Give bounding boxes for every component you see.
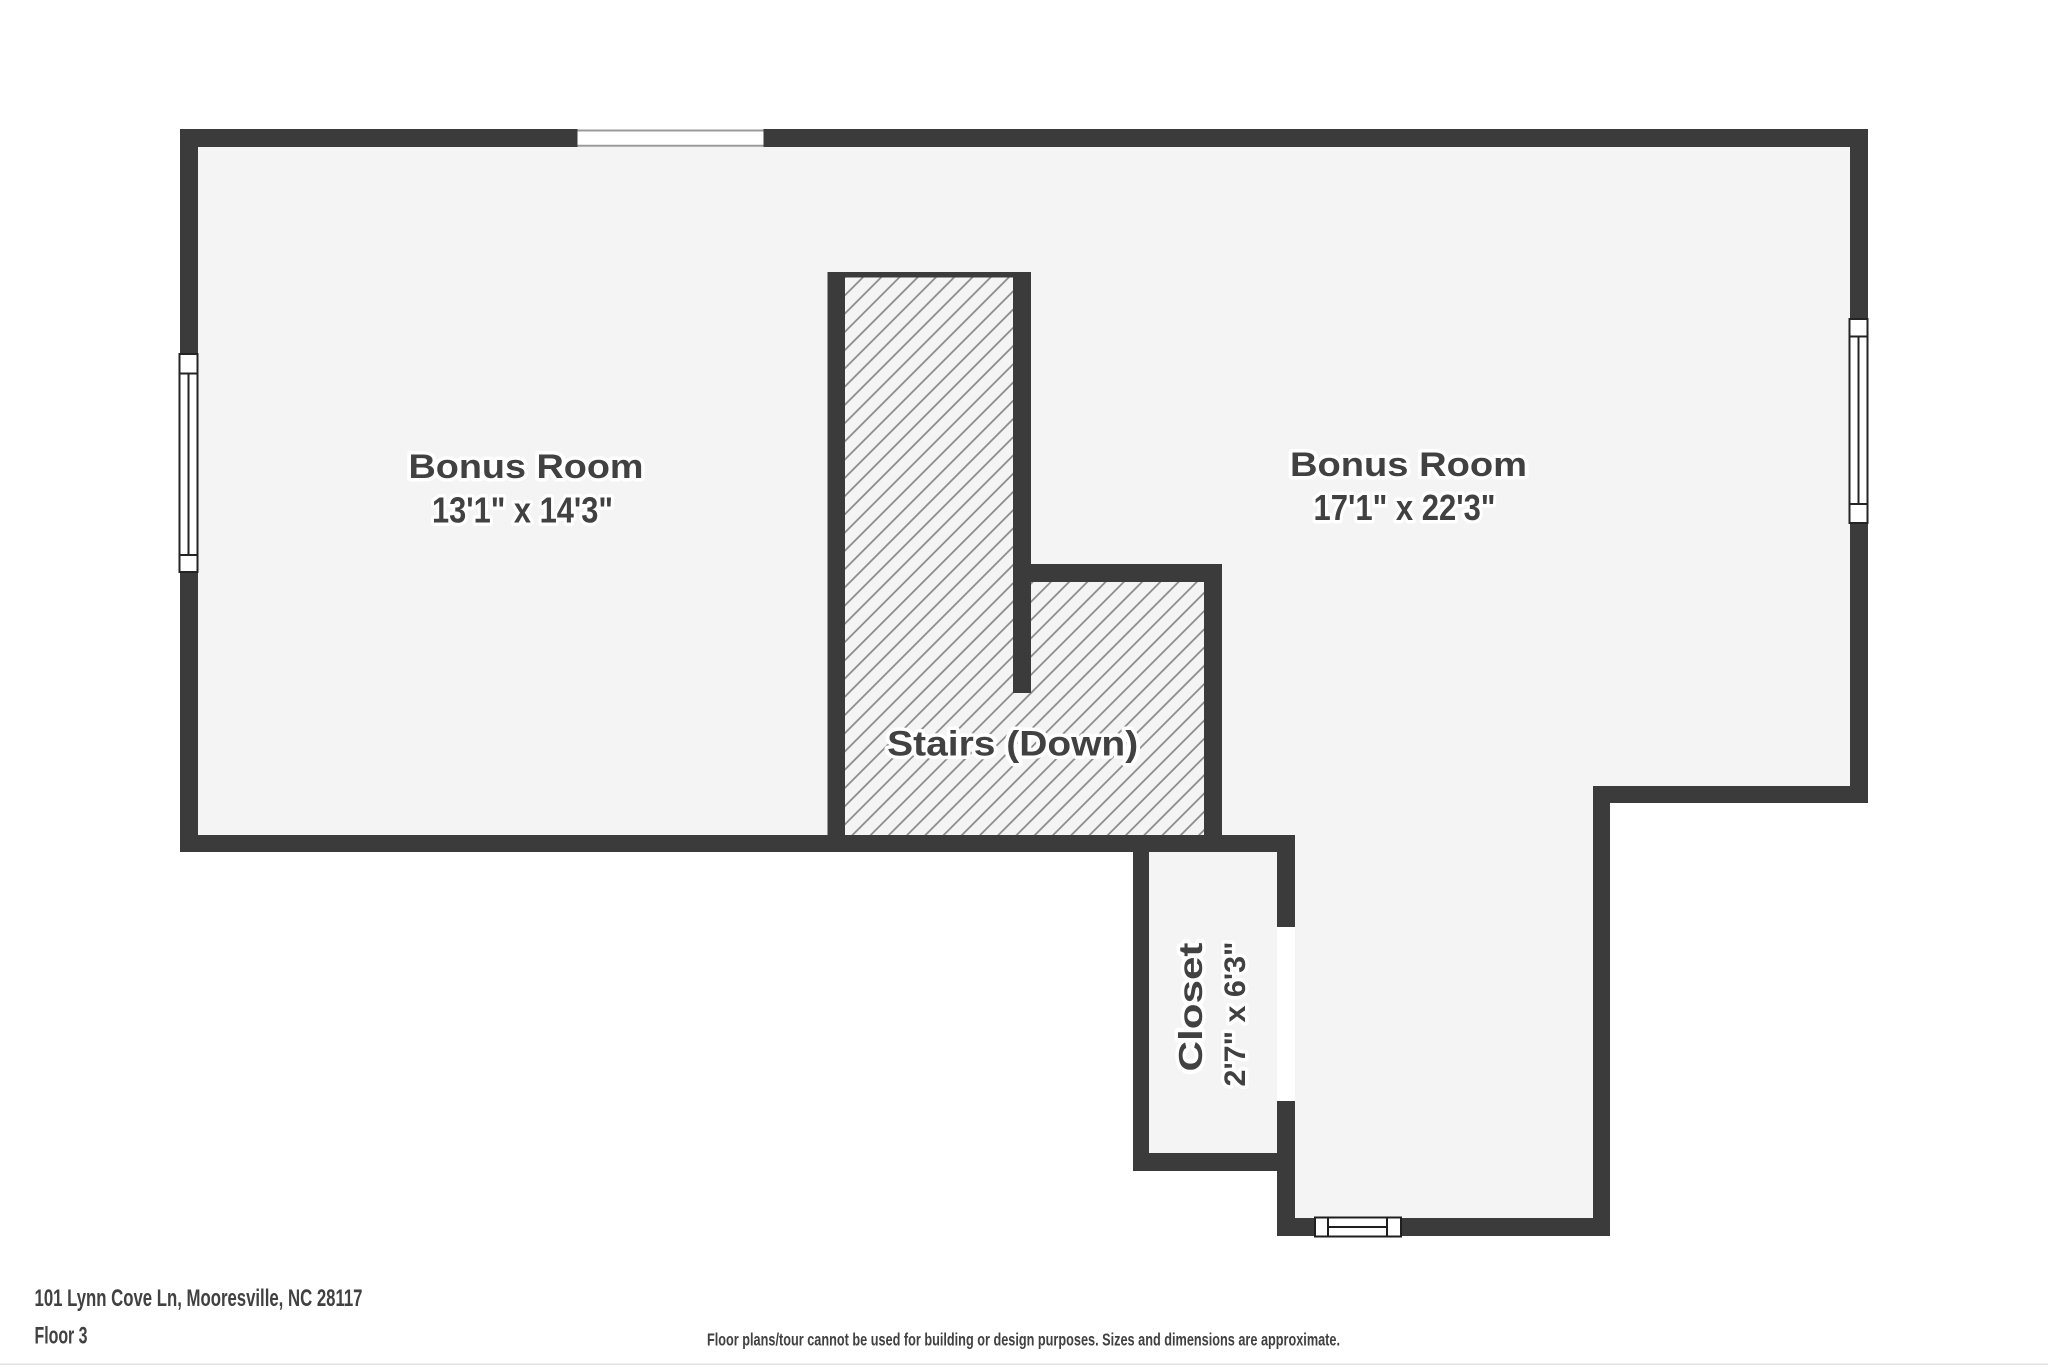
svg-text:17'1" x 22'3": 17'1" x 22'3" <box>1314 487 1496 528</box>
svg-text:Stairs (Down): Stairs (Down) <box>887 724 1138 764</box>
svg-text:Floor plans/tour cannot be use: Floor plans/tour cannot be used for buil… <box>707 1330 1340 1350</box>
svg-text:2'7" x 6'3": 2'7" x 6'3" <box>1219 942 1252 1087</box>
svg-text:13'1" x 14'3": 13'1" x 14'3" <box>432 490 613 531</box>
svg-text:Closet: Closet <box>1172 942 1209 1071</box>
svg-text:Bonus Room: Bonus Room <box>1290 446 1527 484</box>
svg-text:Bonus Room: Bonus Room <box>409 448 644 486</box>
svg-text:Floor 3: Floor 3 <box>35 1323 88 1350</box>
svg-text:101 Lynn Cove Ln, Mooresville,: 101 Lynn Cove Ln, Mooresville, NC 28117 <box>35 1285 363 1312</box>
